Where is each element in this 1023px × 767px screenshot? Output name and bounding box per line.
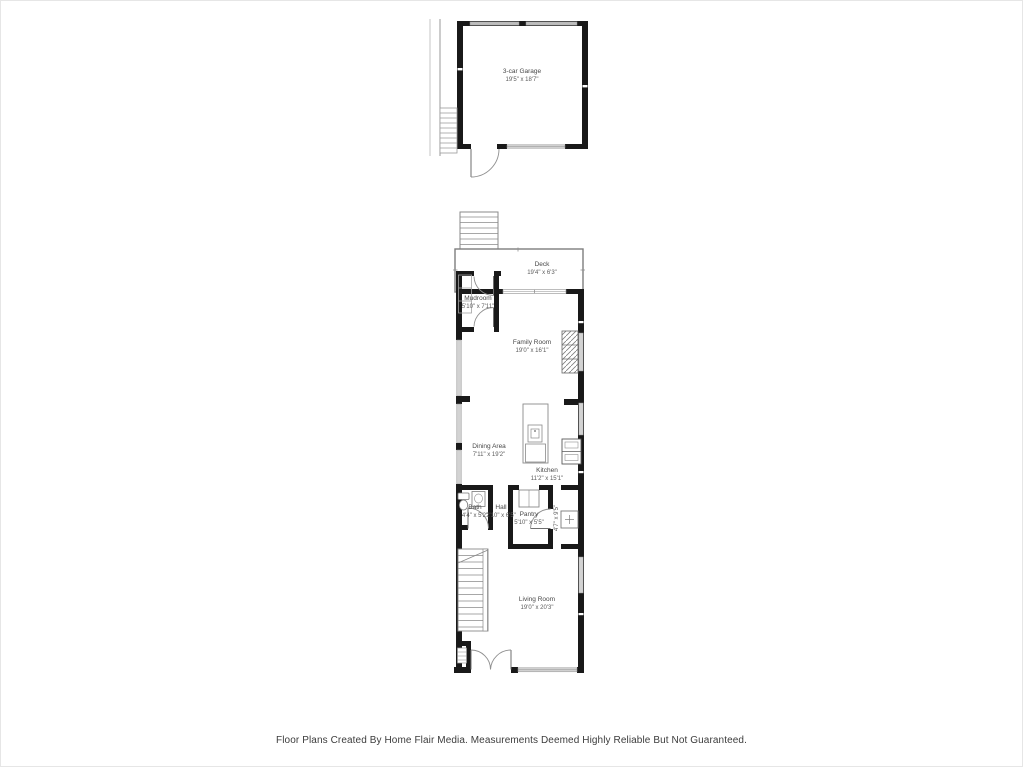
room-label-kitchen: Kitchen 11'2" x 15'1" [531,467,563,483]
room-dims: 4'4" x 5'2" [462,512,488,520]
room-name: 3-car Garage [503,68,541,76]
mudroom-bottom-wall [494,327,499,332]
house-left-wall [456,396,462,404]
exterior-walkway [430,19,457,156]
wall-tick [579,471,584,473]
faucet-icon [534,430,536,432]
floor-plan-page: 3-car Garage 19'5" x 18'7" Deck 19'4" x … [0,0,1023,767]
room-dims: 19'0" x 20'3" [519,604,555,612]
band-top-wall [561,485,584,490]
room-name: Mudroom [462,295,494,303]
room-label-family-room: Family Room 19'0" x 16'1" [513,339,551,355]
room-label-bath: Bath 4'4" x 5'2" [462,504,488,520]
room-name: Deck [527,261,557,269]
deck-stairs [460,212,498,249]
room-label-deck: Deck 19'4" x 6'3" [527,261,557,277]
room-name: Family Room [513,339,551,347]
band-top-wall [456,485,489,490]
wall-tick [583,85,588,87]
island-sink [528,425,542,442]
room-dims: 19'4" x 6'3" [527,269,557,277]
garage-structure [457,21,588,177]
wall-tick [458,68,463,70]
room-label-hall: Hall 2'10" x 6'5" [486,504,516,520]
deck-outline [455,249,583,292]
deck-structure [453,248,585,293]
room-name: Pantry [514,511,544,519]
house-left-wall [456,443,462,450]
bath-bottom-wall [456,525,468,530]
stair-rail [483,549,488,631]
toilet-tank [458,493,469,500]
floor-plan-drawing [1,1,1023,767]
house-bottom-wall [454,667,471,673]
room-name: Bath [462,504,488,512]
room-dims: 7'11" x 19'2" [472,451,506,459]
wall-tick [579,613,584,615]
room-dims: 5'10" x 5'5" [514,519,544,527]
room-dims: 4'7" x 9'5" [553,505,561,531]
band-bottom-wall [510,544,553,549]
room-name: Living Room [519,596,555,604]
window [457,404,461,443]
garage-bottom-wall [497,144,507,149]
fireplace [562,331,578,373]
room-label-living-room: Living Room 19'0" x 20'3" [519,596,555,612]
room-name: Hall [486,504,516,512]
band-bottom-wall [561,544,584,549]
closet-top-wall [456,641,471,646]
house-left-wall [456,332,462,340]
garage-bottom-wall [457,144,471,149]
family-room-top-wall [566,289,584,294]
living-room-structure [456,549,511,670]
window [579,403,583,435]
window [457,340,461,396]
exterior-stairs [440,108,457,153]
window [457,450,461,484]
garage-door-panel [526,22,577,25]
house-bottom-wall [577,667,584,673]
room-label-garage: 3-car Garage 19'5" x 18'7" [503,68,541,84]
wall-stub [564,399,578,405]
fireplace-hatch [562,331,578,373]
room-label-side-hall: 4'7" x 9'5" [553,505,561,531]
garage-bottom-wall [565,144,588,149]
room-dims: 5'10" x 7'11" [462,303,494,311]
wall-tick [579,321,584,323]
room-dims: 11'2" x 15'1" [531,475,563,483]
door-arc-icon [471,650,491,670]
mudroom-right-wall [494,271,499,332]
garage-left-wall [457,21,463,149]
cooktop [526,444,546,462]
garage-door-panel [470,22,519,25]
room-name: Dining Area [472,443,506,451]
door-arc-icon [491,650,512,670]
room-dims: 2'10" x 6'5" [486,512,516,520]
window [579,333,583,371]
closet-shelves [458,648,467,663]
house-bottom-wall [511,667,518,673]
room-dims: 19'0" x 16'1" [513,347,551,355]
wall-stub [462,396,470,402]
footer-disclaimer: Floor Plans Created By Home Flair Media.… [1,735,1022,746]
room-dims: 19'5" x 18'7" [503,76,541,84]
room-label-pantry: Pantry 5'10" x 5'5" [514,511,544,527]
room-name: Kitchen [531,467,563,475]
mudroom-bottom-wall [456,327,474,332]
room-label-dining-area: Dining Area 7'11" x 19'2" [472,443,506,459]
deck-stairs-outline [460,212,498,249]
room-label-mudroom: Mudroom 5'10" x 7'11" [462,295,494,311]
window [579,557,583,593]
garage-door-arc-icon [471,149,499,177]
